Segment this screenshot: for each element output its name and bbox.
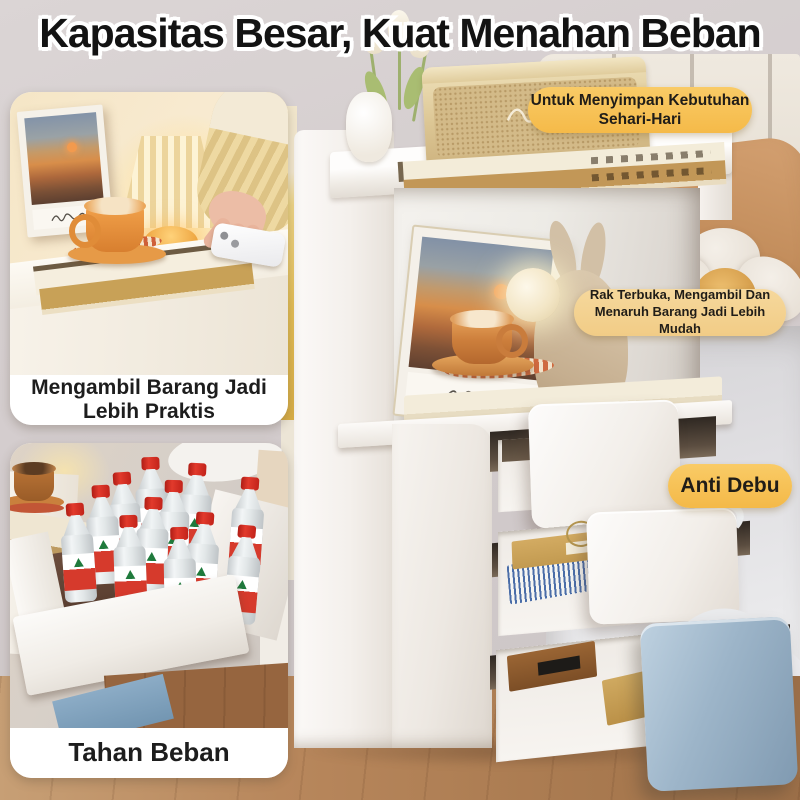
book-spine-text — [592, 167, 712, 181]
badge-line: Untuk Menyimpan Kebutuhan — [531, 91, 750, 110]
drawer-2-front — [586, 507, 740, 624]
badge-open-shelf: Rak Terbuka, Mengambil Dan Menaruh Baran… — [574, 289, 786, 336]
amber-teacup — [452, 316, 512, 364]
product-promo-image: Mengambil Barang Jadi Lebih Praktis — [0, 0, 800, 800]
moon-lamp — [506, 268, 560, 322]
art-print-painting — [24, 112, 103, 205]
water-bottle — [58, 502, 99, 604]
caption-line: Tahan Beban — [68, 738, 229, 767]
card-caption: Mengambil Barang Jadi Lebih Praktis — [10, 375, 288, 425]
teacup-rim — [450, 310, 514, 328]
badge-line: Menaruh Barang Jadi Lebih Mudah — [574, 304, 786, 338]
drawer-3-front-blue — [640, 616, 799, 792]
badge-daily-needs: Untuk Menyimpan Kebutuhan Sehari-Hari — [528, 87, 752, 133]
amber-teacup — [14, 467, 54, 501]
brown-box — [507, 641, 597, 692]
cup-handle — [69, 214, 101, 248]
sweater-cuff — [209, 92, 288, 149]
painting-sun — [66, 142, 77, 153]
card-caption: Tahan Beban — [10, 728, 288, 778]
headline: Kapasitas Besar, Kuat Menahan Beban — [0, 10, 800, 57]
teacup-rim — [12, 462, 56, 475]
box-label — [538, 655, 581, 675]
inset-card-load-bearing: Tahan Beban — [10, 443, 288, 778]
teacup-handle — [496, 324, 528, 358]
badge-line: Sehari-Hari — [599, 110, 682, 129]
card-photo-nightstand-scene — [10, 92, 288, 375]
card-photo-drawer-bottles — [10, 443, 288, 728]
flower-vase — [346, 92, 392, 162]
orange-coffee-cup — [86, 204, 144, 252]
cabinet-side-panel — [392, 424, 492, 748]
cup-rim — [84, 197, 146, 215]
badge-anti-dust: Anti Debu — [668, 464, 792, 508]
phone-camera — [220, 231, 229, 240]
inset-card-practical: Mengambil Barang Jadi Lebih Praktis — [10, 92, 288, 425]
badge-line: Rak Terbuka, Mengambil Dan — [590, 287, 770, 304]
caption-line: Mengambil Barang Jadi — [31, 376, 267, 400]
caption-line: Lebih Praktis — [83, 400, 215, 424]
badge-line: Anti Debu — [680, 474, 779, 498]
